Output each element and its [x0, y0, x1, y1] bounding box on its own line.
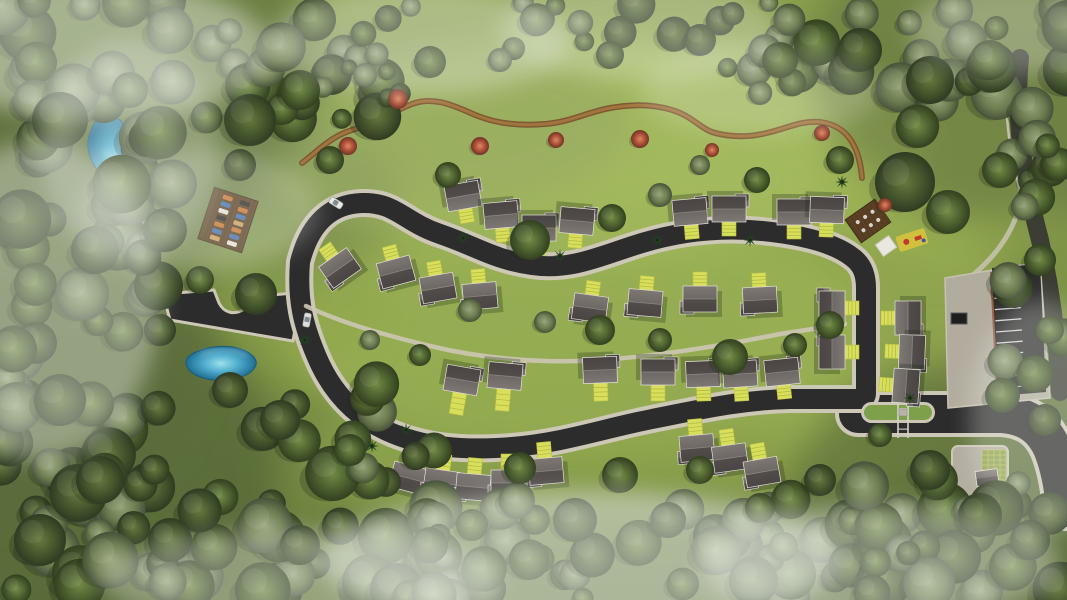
tree-highlight [932, 195, 952, 215]
tree-highlight [849, 1, 864, 16]
tree-highlight [326, 512, 343, 529]
tree-highlight [883, 159, 910, 186]
tree-highlight [1028, 248, 1042, 262]
tree-highlight [651, 331, 662, 342]
palm-center [462, 237, 465, 240]
driveway [722, 222, 736, 236]
driveway [651, 385, 665, 401]
palm-tree [553, 249, 567, 263]
tree-highlight [515, 225, 533, 243]
tree-highlight [1023, 124, 1040, 141]
tree-highlight [338, 438, 352, 452]
tree-highlight [1038, 136, 1049, 147]
tree-highlight [901, 110, 921, 130]
tree-highlight [1014, 196, 1026, 208]
tree-highlight [145, 395, 161, 411]
tree-highlight [244, 504, 269, 529]
driveway [734, 386, 749, 401]
tree-highlight [240, 278, 259, 297]
mist-patch [40, 40, 220, 260]
screenshot-root [0, 0, 1067, 600]
tree-highlight [21, 520, 44, 543]
palm-tree [456, 231, 470, 245]
tree-highlight [88, 522, 102, 536]
driveway [593, 383, 608, 401]
tree-highlight [607, 461, 623, 477]
driveway [819, 223, 833, 237]
tree-highlight [359, 367, 379, 387]
tree-highlight [820, 314, 833, 327]
tree-highlight [915, 455, 933, 473]
driveway [787, 225, 801, 239]
tree-highlight [265, 405, 283, 423]
palm-center [749, 239, 752, 242]
driveway [568, 233, 583, 248]
tree-highlight [846, 467, 868, 489]
driveway [696, 387, 710, 401]
tree-highlight [690, 459, 703, 472]
palm-center [656, 239, 659, 242]
driveway [719, 428, 735, 446]
palm-tree [650, 233, 664, 247]
palm-tree [743, 233, 757, 247]
driveway [845, 301, 859, 315]
tree-highlight [154, 523, 174, 543]
tree-highlight [1016, 92, 1035, 111]
tree-highlight [882, 68, 905, 91]
tree-highlight [786, 336, 797, 347]
tree-highlight [5, 578, 19, 592]
flowering-canopy [705, 143, 719, 157]
tree-highlight [777, 7, 791, 21]
tree-highlight [363, 332, 372, 341]
tree-highlight [320, 149, 333, 162]
tree-highlight [717, 343, 733, 359]
driveway [879, 377, 894, 392]
palm-center [559, 255, 562, 258]
tree-highlight [217, 376, 233, 392]
tree-highlight [830, 149, 843, 162]
palm-center [371, 445, 374, 448]
driveway [881, 311, 895, 325]
tree-highlight [231, 100, 254, 123]
flowering-canopy [631, 130, 649, 148]
palm-tree [365, 439, 379, 453]
mist-patch [640, 45, 880, 135]
tree-highlight [537, 314, 547, 324]
tree-highlight [461, 301, 472, 312]
tree-highlight [82, 462, 104, 484]
tree-highlight [900, 13, 911, 24]
palm-tree [298, 333, 312, 347]
tree-highlight [651, 186, 662, 197]
tree-highlight [994, 266, 1011, 283]
tree-highlight [190, 269, 203, 282]
driveway [467, 458, 482, 475]
tree-highlight [183, 493, 203, 513]
tree-highlight [121, 515, 136, 530]
tree-highlight [589, 318, 603, 332]
tree-highlight [693, 157, 702, 166]
palm-tree [399, 423, 413, 437]
masterplan-aerial-render [0, 0, 1067, 600]
palm-center [841, 181, 844, 184]
tree-highlight [412, 347, 422, 357]
tree-highlight [405, 445, 418, 458]
flowering-canopy [878, 198, 892, 212]
driveway [536, 442, 551, 459]
tree-highlight [776, 484, 794, 502]
driveway [684, 224, 699, 239]
tree-highlight [285, 75, 303, 93]
driveway [471, 268, 486, 283]
driveway [776, 384, 791, 399]
driveway [495, 388, 511, 411]
palm-center [405, 429, 408, 432]
tree-highlight [334, 111, 343, 120]
palm-center [304, 339, 307, 342]
tree-highlight [912, 62, 934, 84]
tree-highlight [987, 156, 1003, 172]
flowering-canopy [339, 137, 357, 155]
driveway [585, 280, 601, 296]
driveway [687, 419, 702, 436]
driveway [458, 208, 474, 224]
tree-highlight [89, 538, 114, 563]
driveway [426, 260, 442, 276]
tree-highlight [871, 426, 882, 437]
palm-tree [903, 391, 917, 405]
flowering-canopy [471, 137, 489, 155]
tree-highlight [602, 207, 615, 220]
driveway [750, 442, 767, 460]
palm-tree [835, 175, 849, 189]
tree-highlight [808, 468, 822, 482]
tree-highlight [844, 33, 864, 53]
driveway [639, 275, 654, 290]
tree-highlight [143, 458, 156, 471]
tree-highlight [508, 456, 522, 470]
flowering-canopy [548, 132, 564, 148]
car-windshield [304, 317, 310, 323]
palm-center [909, 397, 912, 400]
driveway [752, 273, 767, 288]
driveway [845, 345, 859, 359]
tree-highlight [438, 165, 450, 177]
driveway [885, 344, 899, 358]
guard-booth [899, 409, 907, 416]
driveway [693, 272, 707, 286]
dumpster [951, 313, 967, 324]
tree-highlight [747, 170, 759, 182]
